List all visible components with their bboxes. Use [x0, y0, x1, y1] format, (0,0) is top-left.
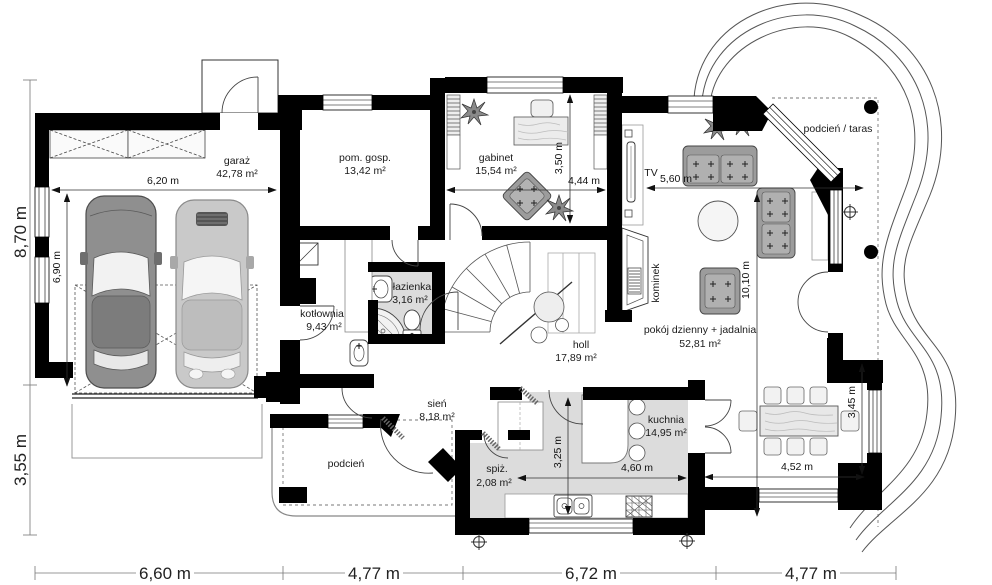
corridor-basin: [350, 340, 368, 366]
label-porch: podcień: [328, 458, 365, 470]
car-dark: [80, 196, 162, 388]
label-terrace: podcień / taras: [804, 123, 873, 135]
window: [35, 187, 49, 237]
kitchen-sink: [554, 495, 592, 517]
fireplace: [622, 228, 648, 312]
dim-office-width: 4,44 m: [568, 175, 600, 187]
room-area-living: 52,81 m²: [679, 338, 721, 350]
garage-shelves: [50, 130, 205, 158]
entry-porch: [202, 60, 278, 113]
window: [869, 390, 881, 453]
door-opening: [220, 113, 258, 130]
dim-garage-width: 6,20 m: [147, 175, 179, 187]
door-boiler-out: [342, 388, 372, 418]
hall-wardrobe: [498, 402, 543, 450]
room-area-pantry: 2,08 m²: [476, 477, 512, 489]
dim-bottom-4: 4,77 m: [785, 564, 837, 583]
sofa-top: [683, 146, 757, 186]
label-fireplace: kominek: [650, 263, 662, 303]
room-label-hall: holl: [573, 339, 589, 351]
room-label-kitchen: kuchnia: [648, 414, 684, 426]
driveway-outline: [72, 404, 262, 458]
terrace-column: [864, 245, 878, 259]
survey-mark-icon: [842, 204, 858, 220]
door-front-entrance: [381, 418, 433, 473]
stool: [629, 445, 645, 461]
window: [35, 257, 49, 303]
room-label-pantry: spiż.: [486, 463, 508, 475]
bathroom-sink: [370, 276, 392, 302]
dim-kitchen-depth: 3,25 m: [552, 436, 564, 468]
dim-bottom-3: 6,72 m: [565, 564, 617, 583]
label-tv: TV: [644, 167, 657, 179]
floor-plan-page: garaż 42,78 m² pom. gosp. 13,42 m² gabin…: [0, 0, 992, 585]
survey-mark-icon: [471, 534, 487, 550]
staircase: [440, 242, 595, 344]
armchair-living: [700, 268, 740, 314]
window: [759, 489, 838, 502]
kitchen-island: [582, 395, 628, 463]
window: [529, 519, 633, 533]
tv-unit: [622, 125, 643, 225]
room-label-bathroom: łazienka: [393, 281, 432, 293]
stool: [629, 423, 645, 439]
dim-overall-left-upper: 8,70 m: [11, 206, 30, 258]
plant-icon: [461, 99, 488, 125]
room-area-vestibule: 8,18 m²: [419, 411, 455, 423]
dim-dining-width: 4,52 m: [781, 461, 813, 473]
room-area-hall: 17,89 m²: [555, 352, 597, 364]
room-label-utility: pom. gosp.: [339, 152, 391, 164]
stool: [629, 399, 645, 415]
dim-overall-left-lower: 3,55 m: [11, 434, 30, 486]
office-desk: [514, 100, 568, 145]
window-diagonal-glass: [763, 104, 841, 182]
room-area-garage: 42,78 m²: [216, 168, 258, 180]
room-area-utility: 13,42 m²: [344, 165, 386, 177]
dim-living-width: 5,60 m: [660, 173, 692, 185]
room-label-vestibule: sień: [427, 398, 446, 410]
dim-living-depth: 10,10 m: [740, 261, 752, 299]
room-area-office: 15,54 m²: [475, 165, 517, 177]
dim-office-depth: 3,50 m: [553, 142, 565, 174]
dim-kitchen-width: 4,60 m: [621, 462, 653, 474]
room-area-bathroom: 3,16 m²: [392, 294, 428, 306]
dim-dining-depth: 3,45 m: [846, 386, 858, 418]
door-kitchen-dining-double: [705, 400, 731, 453]
window: [323, 95, 372, 110]
porch-dashed-boundary: [283, 420, 452, 505]
dim-bottom-2: 4,77 m: [348, 564, 400, 583]
terrace-column: [864, 100, 878, 114]
door-office: [450, 204, 482, 240]
window: [328, 415, 363, 428]
window: [668, 96, 713, 113]
door-terrace-double: [798, 272, 828, 332]
sofa-right: [757, 188, 795, 258]
dim-bottom-1: 6,60 m: [139, 564, 191, 583]
room-label-garage: garaż: [224, 155, 250, 167]
room-label-office: gabinet: [479, 152, 514, 164]
window: [487, 77, 563, 93]
dim-garage-depth: 6,90 m: [51, 251, 63, 283]
kitchen-counter: [505, 494, 688, 518]
office-armchair: [502, 171, 553, 222]
boiler-cabinet: [345, 233, 372, 332]
window: [830, 190, 842, 264]
room-label-boiler: kotłownia: [300, 308, 344, 320]
car-light: [170, 200, 254, 388]
room-area-kitchen: 14,95 m²: [645, 427, 687, 439]
floor-plan-drawing: garaż 42,78 m² pom. gosp. 13,42 m² gabin…: [0, 0, 992, 585]
room-label-living: pokój dzienny + jadalnia: [644, 324, 757, 336]
room-area-boiler: 9,43 m²: [306, 321, 342, 333]
coffee-table: [698, 201, 738, 241]
survey-mark-icon: [679, 533, 695, 549]
